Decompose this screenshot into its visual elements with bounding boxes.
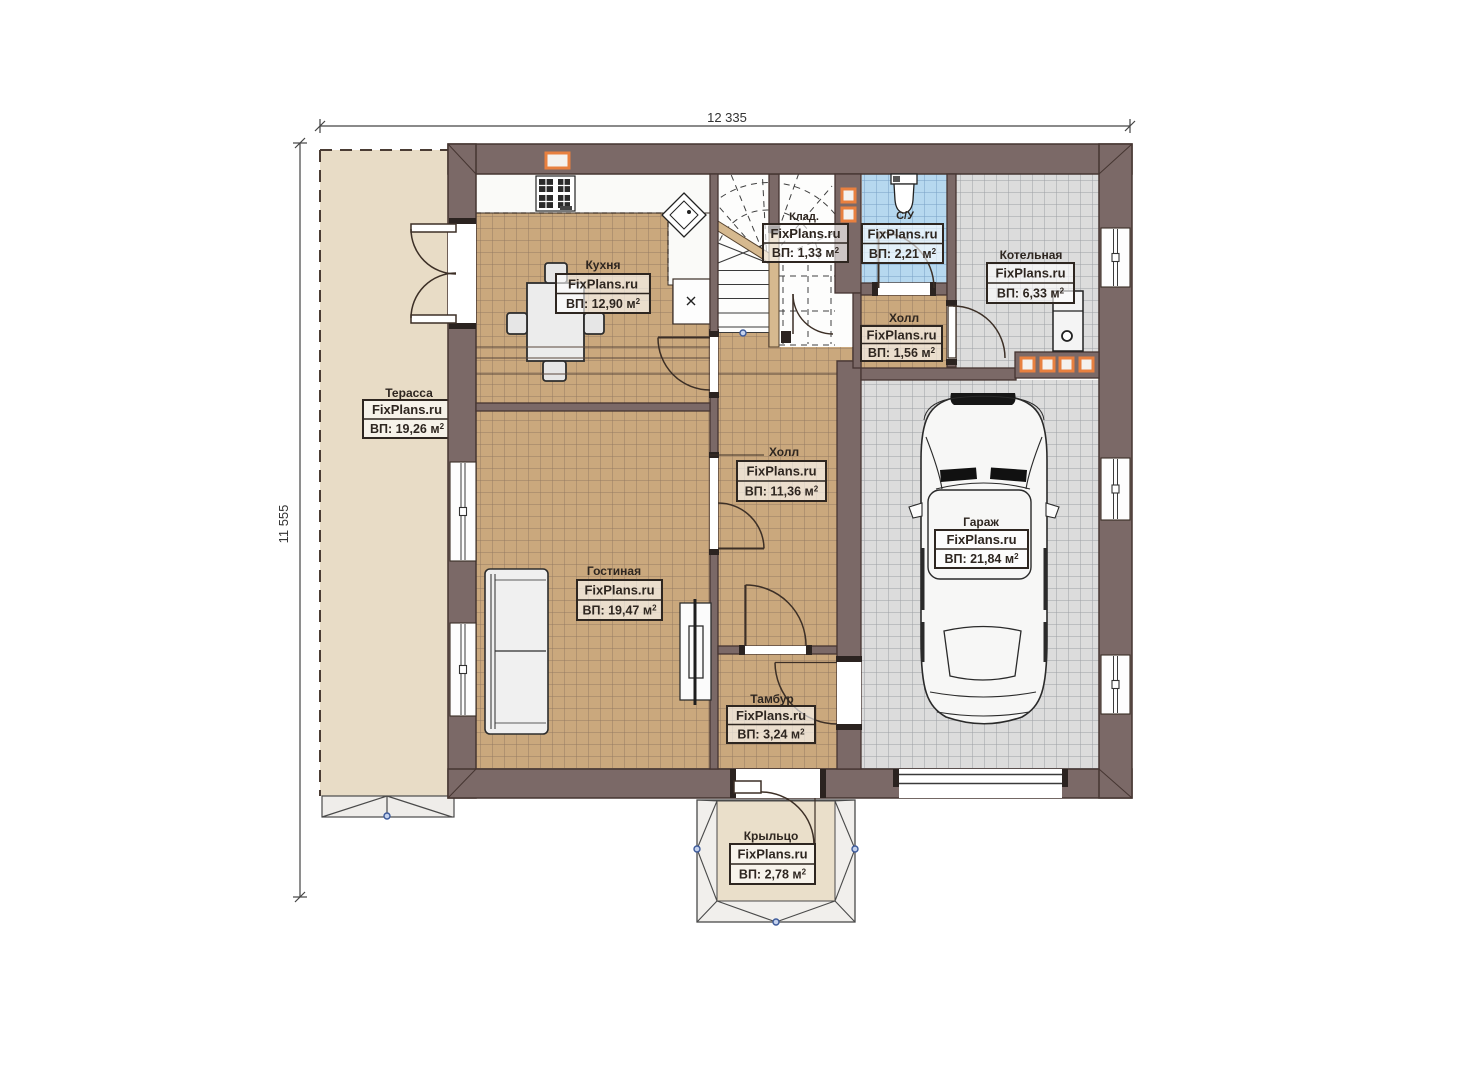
svg-text:Крыльцо: Крыльцо	[744, 829, 799, 843]
svg-text:FixPlans.ru: FixPlans.ru	[736, 708, 806, 723]
svg-text:Холл: Холл	[889, 311, 919, 325]
svg-text:ВП: 11,36 м2: ВП: 11,36 м2	[745, 485, 819, 499]
svg-text:FixPlans.ru: FixPlans.ru	[584, 583, 654, 598]
svg-text:Тамбур: Тамбур	[750, 692, 794, 706]
svg-text:ВП: 19,47 м2: ВП: 19,47 м2	[582, 604, 657, 618]
svg-text:ВП: 6,33 м2: ВП: 6,33 м2	[997, 287, 1065, 301]
svg-text:Гараж: Гараж	[963, 515, 999, 529]
svg-text:FixPlans.ru: FixPlans.ru	[770, 226, 840, 241]
svg-text:ВП: 2,78 м2: ВП: 2,78 м2	[739, 868, 807, 882]
svg-text:ВП: 2,21 м2: ВП: 2,21 м2	[869, 247, 937, 261]
svg-text:Терасса: Терасса	[385, 386, 433, 400]
svg-text:ВП: 1,56 м2: ВП: 1,56 м2	[868, 346, 936, 360]
svg-text:11 555: 11 555	[276, 505, 291, 544]
svg-text:Холл: Холл	[769, 445, 799, 459]
svg-text:С/У: С/У	[896, 210, 914, 222]
svg-text:FixPlans.ru: FixPlans.ru	[737, 847, 807, 862]
svg-text:FixPlans.ru: FixPlans.ru	[866, 327, 936, 342]
svg-text:ВП: 1,33 м2: ВП: 1,33 м2	[772, 246, 840, 260]
svg-text:ВП: 21,84 м2: ВП: 21,84 м2	[944, 552, 1019, 566]
svg-text:ВП: 12,90 м2: ВП: 12,90 м2	[566, 297, 641, 311]
svg-text:Котельная: Котельная	[1000, 248, 1063, 262]
svg-text:FixPlans.ru: FixPlans.ru	[995, 266, 1065, 281]
svg-text:FixPlans.ru: FixPlans.ru	[946, 532, 1016, 547]
svg-text:Гостиная: Гостиная	[587, 564, 641, 578]
svg-text:ВП: 3,24 м2: ВП: 3,24 м2	[737, 727, 805, 741]
svg-text:ВП: 19,26 м2: ВП: 19,26 м2	[370, 422, 445, 436]
svg-text:FixPlans.ru: FixPlans.ru	[867, 226, 937, 241]
svg-text:FixPlans.ru: FixPlans.ru	[746, 464, 816, 479]
svg-text:12 335: 12 335	[707, 110, 747, 125]
svg-text:Кухня: Кухня	[585, 258, 620, 272]
svg-text:FixPlans.ru: FixPlans.ru	[568, 276, 638, 291]
svg-text:Клад.: Клад.	[789, 211, 819, 223]
svg-text:FixPlans.ru: FixPlans.ru	[372, 402, 442, 417]
